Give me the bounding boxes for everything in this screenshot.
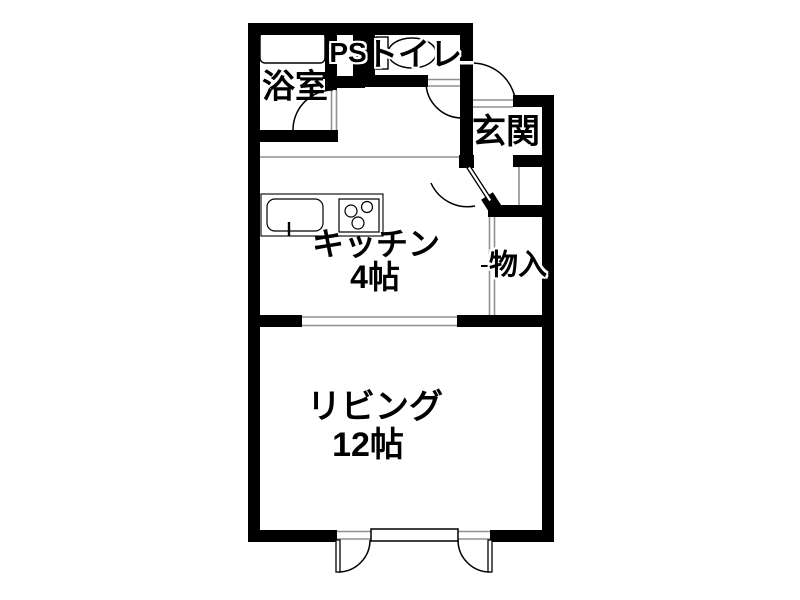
wall-bathroom-bottom: [248, 130, 338, 142]
balcony-left-door-leaf: [336, 540, 340, 572]
balcony-right-door-swing-arc-icon: [458, 540, 490, 572]
room-label-kitchen: キッチン: [312, 228, 440, 260]
toilet-doorway: [428, 80, 462, 87]
room-size-kitchen: 4帖: [350, 261, 400, 293]
wall-entrance-top: [513, 95, 554, 107]
wall-left: [248, 23, 260, 542]
room-label-toilet: トイレ: [366, 38, 462, 70]
wall-entrance-bottom: [513, 155, 554, 167]
room-label-entrance: 玄関: [472, 115, 540, 149]
balcony-fixed-panel: [371, 529, 458, 541]
room-label-bathroom: 浴室: [262, 70, 328, 103]
floor-plan-drawing: [0, 0, 800, 600]
room-size-living: 12帖: [332, 428, 404, 462]
room-label-storage: 物入: [489, 252, 547, 281]
bathroom-doorway: [332, 90, 337, 130]
bathtub-icon: [260, 32, 325, 63]
wall-door-post: [459, 155, 474, 168]
balcony-left-door-swing-arc-icon: [338, 540, 370, 572]
wall-toilet-bottom: [353, 75, 428, 87]
wall-divider-right: [457, 315, 554, 327]
floor-plan: 浴室 PS トイレ 玄関 キッチン 4帖 物入 リビング 12帖: [0, 0, 800, 600]
room-label-living: リビング: [307, 390, 443, 424]
entrance-doorway: [472, 100, 513, 107]
room-label-pipe-space: PS: [329, 39, 366, 67]
wall-divider-left: [248, 315, 302, 327]
balcony-right-door-leaf: [488, 540, 492, 572]
wall-bottom-left: [248, 530, 337, 542]
kitchen-living-opening: [302, 317, 457, 326]
burner-icon: [362, 202, 373, 213]
hall-door-swing-arc-icon: [431, 183, 475, 207]
hall-door-leaf: [467, 166, 492, 202]
toilet-door-swing-arc-icon: [426, 82, 462, 118]
burner-icon: [345, 205, 357, 217]
